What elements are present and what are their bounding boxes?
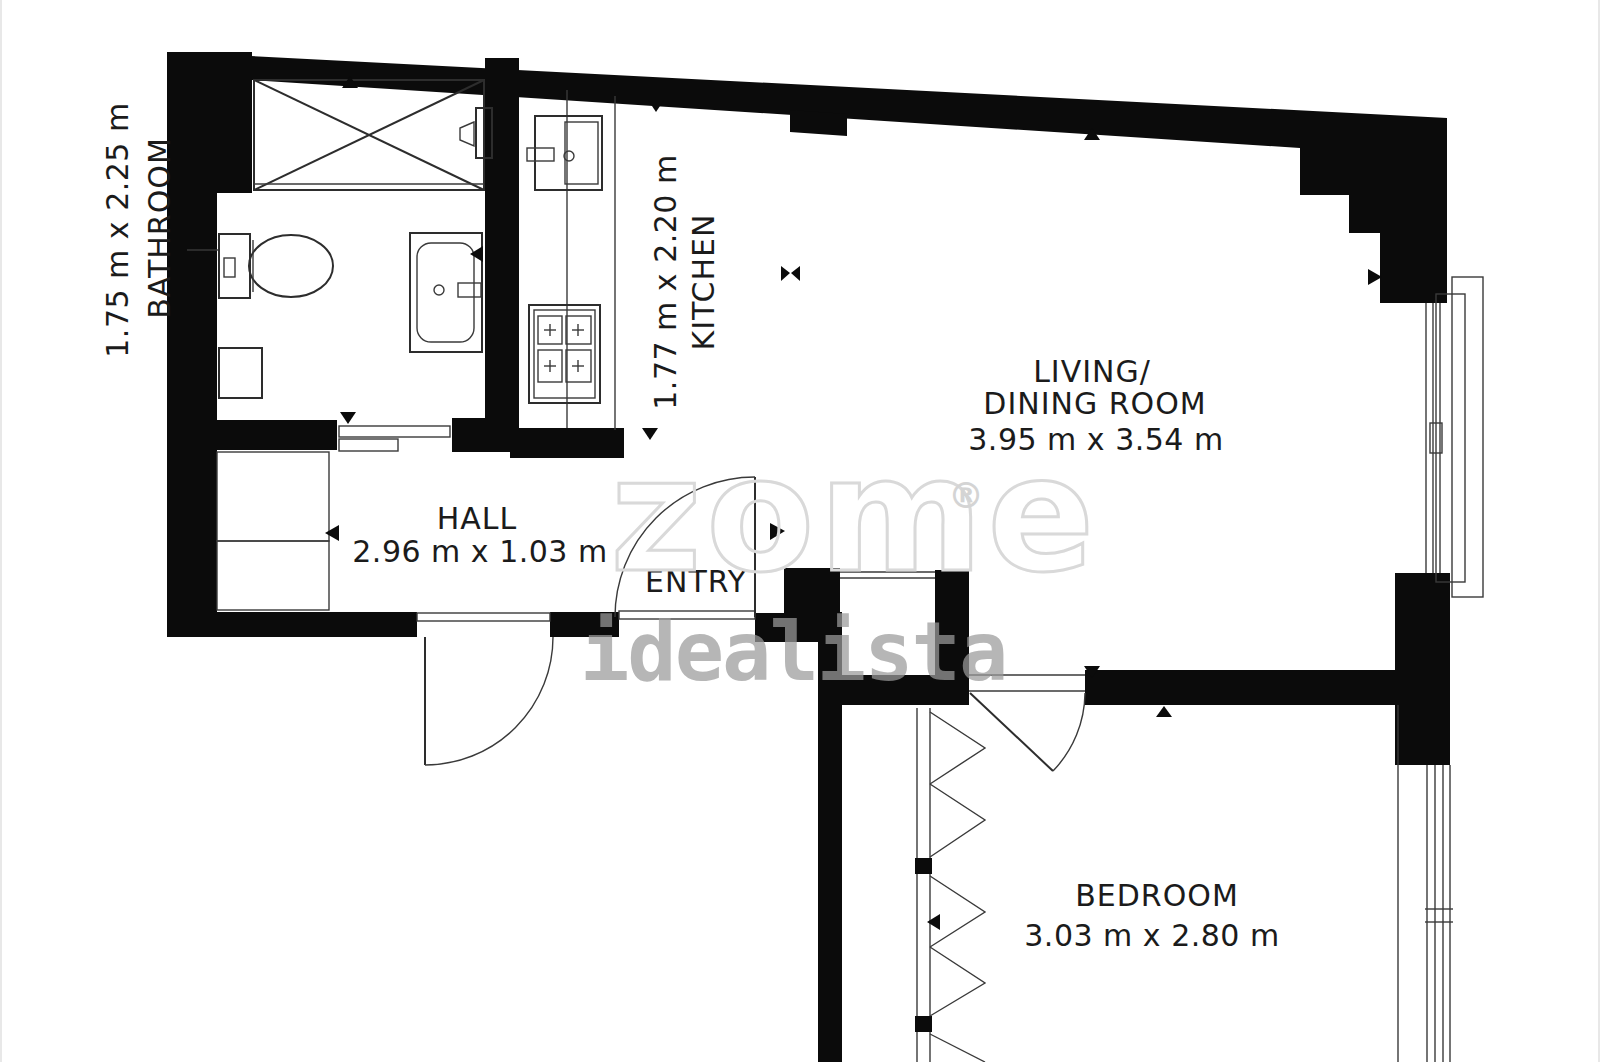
marker-left-icon (470, 246, 483, 262)
sliding-door (339, 426, 450, 451)
watermarks: zome ® idealista (580, 423, 1098, 699)
kitchen-sink (527, 116, 602, 190)
bedroom-label: BEDROOM (1075, 878, 1239, 913)
living-room-label-line1: LIVING/ (1033, 354, 1151, 389)
wall-left-column (167, 52, 252, 193)
kitchen-fixtures (527, 90, 615, 430)
wardrobe-folding-doors (915, 708, 985, 1062)
marker-left-icon (325, 525, 339, 541)
bathroom-cabinet (219, 348, 262, 398)
wall-bathroom-bottom-left (167, 420, 337, 450)
marker-bowtie-icon (791, 266, 800, 281)
bathroom-dims: 1.75 m x 2.25 m (100, 102, 135, 357)
living-room-label-line2: DINING ROOM (983, 386, 1206, 421)
floor-plan-image: BATHROOM 1.75 m x 2.25 m KITCHEN 1.77 m … (0, 0, 1600, 1062)
wall-bedroom-top (1085, 670, 1399, 705)
wall-right-column (1395, 573, 1450, 765)
marker-right-icon (1368, 269, 1382, 285)
wall-top-exterior (172, 52, 1447, 303)
living-room-window (1426, 277, 1483, 597)
marker-down-icon (340, 412, 356, 424)
marker-left-icon (927, 914, 940, 930)
wall-bathroom-kitchen (485, 58, 519, 452)
marker-up-icon (1156, 706, 1172, 717)
shower (254, 80, 492, 190)
kitchen-label: KITCHEN (686, 214, 721, 351)
stove (529, 305, 600, 403)
kitchen-dims: 1.77 m x 2.20 m (648, 154, 683, 409)
watermark-zome: zome (610, 423, 1098, 607)
wall-bathroom-bottom-right (452, 418, 519, 452)
wall-hall-bottom-left (167, 612, 417, 637)
hall-exterior-door (417, 613, 553, 765)
watermark-idealista: idealista (580, 604, 1006, 699)
hall-closet-upper (217, 452, 329, 541)
washbasin (410, 233, 482, 352)
hall-closet-lower (217, 541, 329, 610)
wall-kitchen-bottom (510, 428, 624, 458)
wall-pillar (790, 110, 847, 136)
bedroom-dims: 3.03 m x 2.80 m (1024, 918, 1279, 953)
hall-dims: 2.96 m x 1.03 m (352, 534, 607, 569)
bathroom-label: BATHROOM (142, 137, 177, 319)
watermark-registered-icon: ® (948, 475, 984, 516)
marker-bowtie-icon (781, 266, 790, 281)
hall-label: HALL (437, 501, 518, 536)
floor-plan-svg: BATHROOM 1.75 m x 2.25 m KITCHEN 1.77 m … (2, 0, 1600, 1062)
hall-fixtures (217, 452, 329, 610)
